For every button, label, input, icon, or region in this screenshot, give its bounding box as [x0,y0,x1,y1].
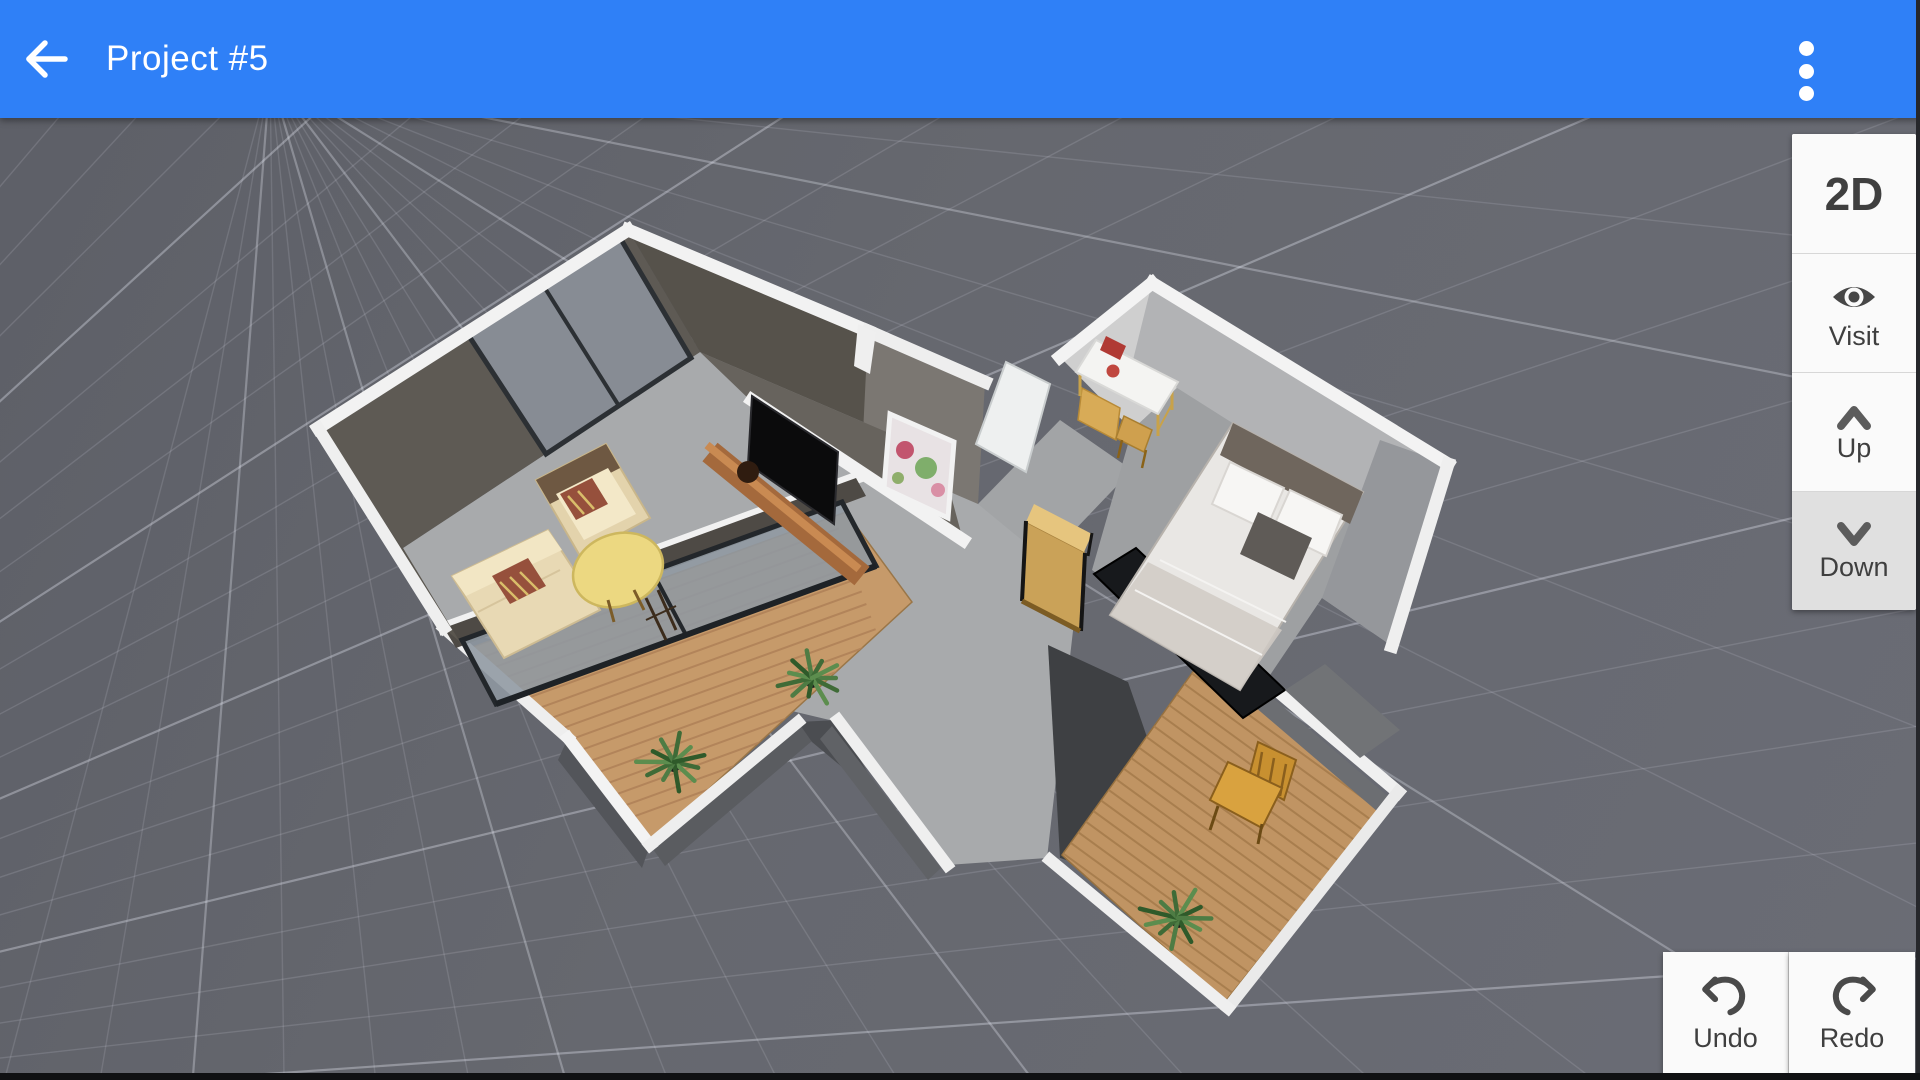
history-controls: Undo Redo [1663,952,1915,1075]
down-label: Down [1819,552,1888,583]
overflow-menu-button[interactable] [1782,35,1830,107]
kebab-menu-icon [1799,86,1814,101]
kebab-menu-icon [1799,41,1814,56]
arrow-left-icon [18,31,74,87]
visit-label: Visit [1829,321,1880,352]
floor-down-button[interactable]: Down [1792,491,1916,610]
up-label: Up [1837,433,1872,464]
undo-label: Undo [1693,1023,1758,1054]
floorplan-3d-render [0,0,1920,1080]
view-2d-button[interactable]: 2D [1792,134,1916,253]
undo-arrow-icon [1699,973,1753,1021]
back-button[interactable] [0,0,92,118]
viewport-3d[interactable] [0,0,1920,1080]
screen-edge-bottom [0,1073,1920,1080]
redo-button[interactable]: Redo [1789,952,1915,1075]
visit-button[interactable]: Visit [1792,253,1916,372]
page-title: Project #5 [106,39,269,79]
kebab-menu-icon [1799,64,1814,79]
screen-edge-right [1916,0,1920,1080]
floor-up-button[interactable]: Up [1792,372,1916,491]
chevron-down-icon [1831,520,1877,550]
view-control-panel: 2D Visit Up Down [1792,134,1916,610]
eye-icon [1828,275,1880,319]
home-design-app: Project #5 2D Visit Up [0,0,1920,1080]
redo-label: Redo [1820,1023,1885,1054]
app-bar: Project #5 [0,0,1920,118]
view-2d-label: 2D [1825,167,1884,221]
chevron-up-icon [1831,401,1877,431]
redo-arrow-icon [1825,973,1879,1021]
undo-button[interactable]: Undo [1663,952,1789,1075]
